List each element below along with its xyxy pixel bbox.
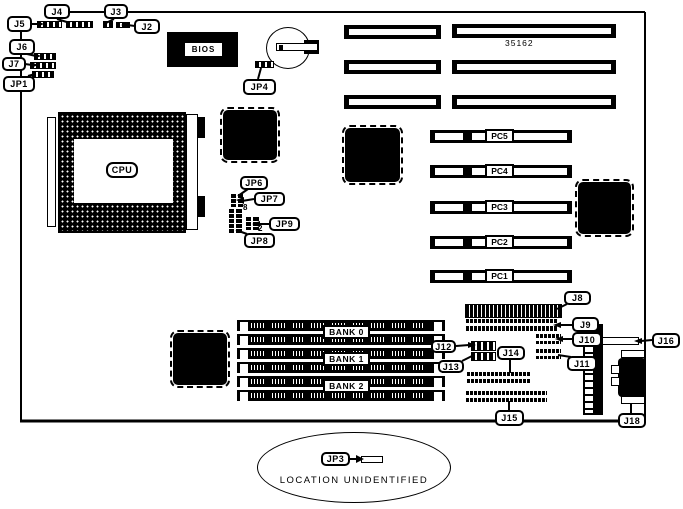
callout-arrowheads bbox=[31, 21, 642, 463]
callout-jp1: JP1 bbox=[3, 76, 35, 92]
callout-jp9: JP9 bbox=[269, 217, 300, 231]
board-outline bbox=[0, 0, 683, 509]
callout-j2: J2 bbox=[134, 19, 160, 34]
callout-j12: J12 bbox=[431, 340, 456, 353]
callout-j14: J14 bbox=[497, 346, 525, 360]
callout-j9: J9 bbox=[572, 317, 599, 332]
callout-j4: J4 bbox=[44, 4, 70, 19]
callout-j7: J7 bbox=[2, 57, 26, 71]
jp8-pin-number: 8 bbox=[243, 203, 247, 212]
callout-j6: J6 bbox=[9, 39, 35, 55]
callout-j10: J10 bbox=[572, 332, 602, 347]
callout-jp7: JP7 bbox=[254, 192, 285, 206]
callout-j5: J5 bbox=[7, 16, 32, 32]
callout-jp8: JP8 bbox=[244, 233, 275, 248]
callout-j3: J3 bbox=[104, 4, 128, 19]
callout-j13: J13 bbox=[438, 360, 464, 373]
callout-j18: J18 bbox=[618, 413, 646, 428]
callout-jp3: JP3 bbox=[321, 452, 350, 466]
jp9-pin-number: 2 bbox=[258, 224, 262, 233]
cpu-label: CPU bbox=[106, 162, 138, 178]
callout-j11: J11 bbox=[567, 356, 597, 371]
callout-j15: J15 bbox=[495, 410, 524, 426]
callout-j8: J8 bbox=[564, 291, 591, 305]
callout-j16: J16 bbox=[652, 333, 680, 348]
callout-jp6: JP6 bbox=[240, 176, 268, 190]
motherboard-diagram: BIOS 35162 PC5 PC4 PC3 PC2 PC1 CPU bbox=[0, 0, 683, 509]
callout-jp4: JP4 bbox=[243, 79, 276, 95]
callout-leader-lines bbox=[25, 19, 652, 459]
